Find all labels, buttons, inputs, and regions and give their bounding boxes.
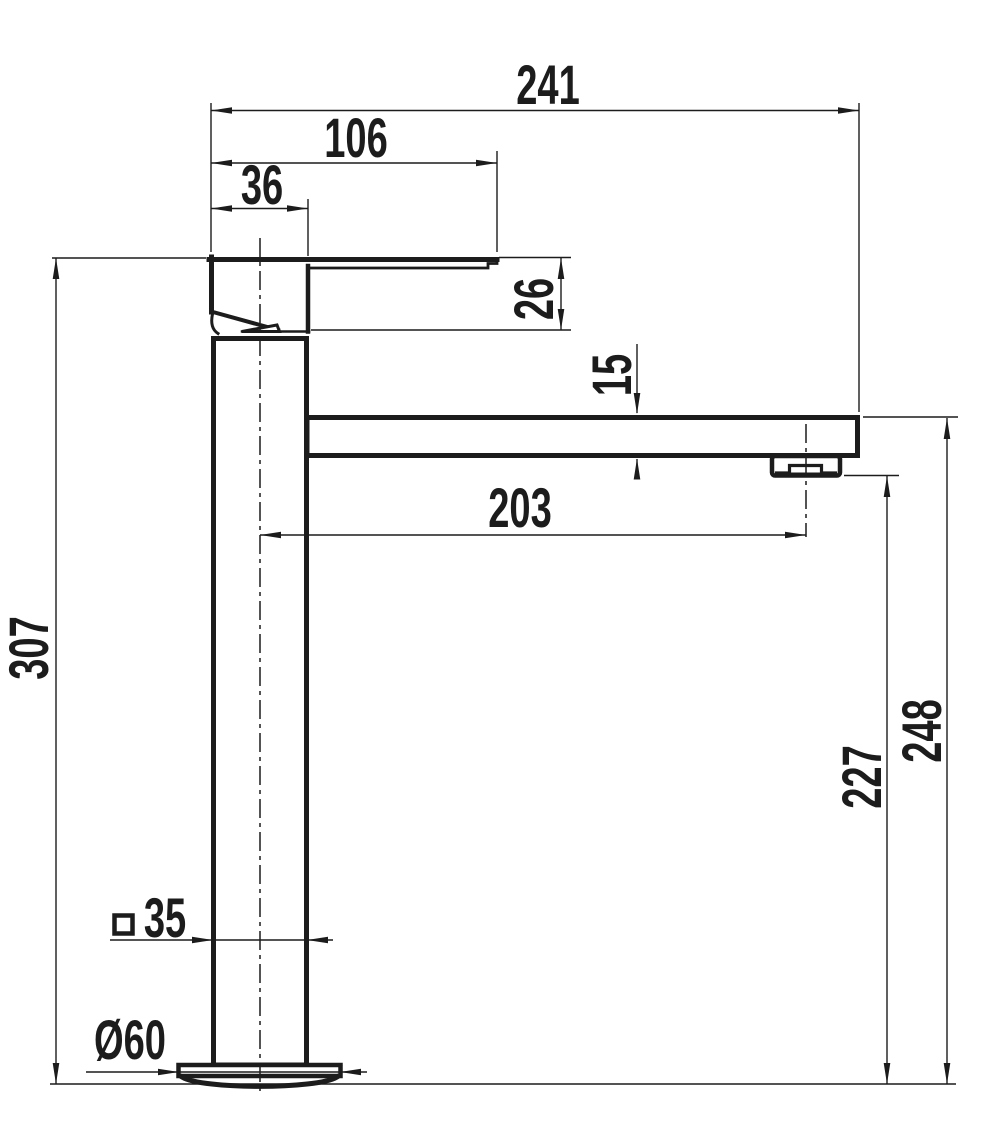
arrowhead-left [211,160,232,167]
faucet-outline [179,257,858,1086]
arrowhead-up [944,418,951,439]
dim-label-106: 106 [324,108,388,170]
dim-227: 227 [832,476,899,1085]
dim-label-26: 26 [504,278,566,320]
arrowhead-right [287,205,308,212]
dim-307: 307 [0,258,206,1084]
arrowhead-down [944,1063,951,1084]
arrowhead-right [192,937,213,944]
dim-15: 15 [582,344,644,480]
dim-label-241: 241 [516,55,580,117]
arrowhead-left [211,107,232,114]
dim-label-36: 36 [241,155,283,217]
dim-label-35: 35 [144,888,186,950]
square-section-symbol [115,916,133,934]
handle-joint-curve [212,314,218,334]
arrowhead-left [340,1069,361,1076]
arrowhead-up [884,476,891,497]
faucet-handle [209,257,497,334]
arrowhead-left [211,205,232,212]
dim-label-307: 307 [0,616,61,680]
technical-drawing-canvas: 241 106 36 26 15 203 [0,0,990,1136]
arrowhead-right [476,160,497,167]
arrowhead-up [558,258,565,279]
arrowhead-right [785,532,806,539]
dim-label-203: 203 [488,478,552,540]
faucet-dimension-drawing: 241 106 36 26 15 203 [0,0,990,1136]
arrowhead-down [884,1063,891,1084]
arrowhead-right [838,107,859,114]
arrowhead-up [53,258,60,279]
dim-label-diameter-60: Ø60 [94,1010,166,1072]
arrowhead-down [53,1063,60,1084]
arrowhead-left [307,937,328,944]
arrowhead-up [634,459,641,480]
dim-203: 203 [260,478,806,540]
dim-label-15: 15 [582,354,644,396]
faucet-spout [307,418,858,456]
dim-label-227: 227 [832,745,894,809]
dim-label-248: 248 [892,699,954,763]
